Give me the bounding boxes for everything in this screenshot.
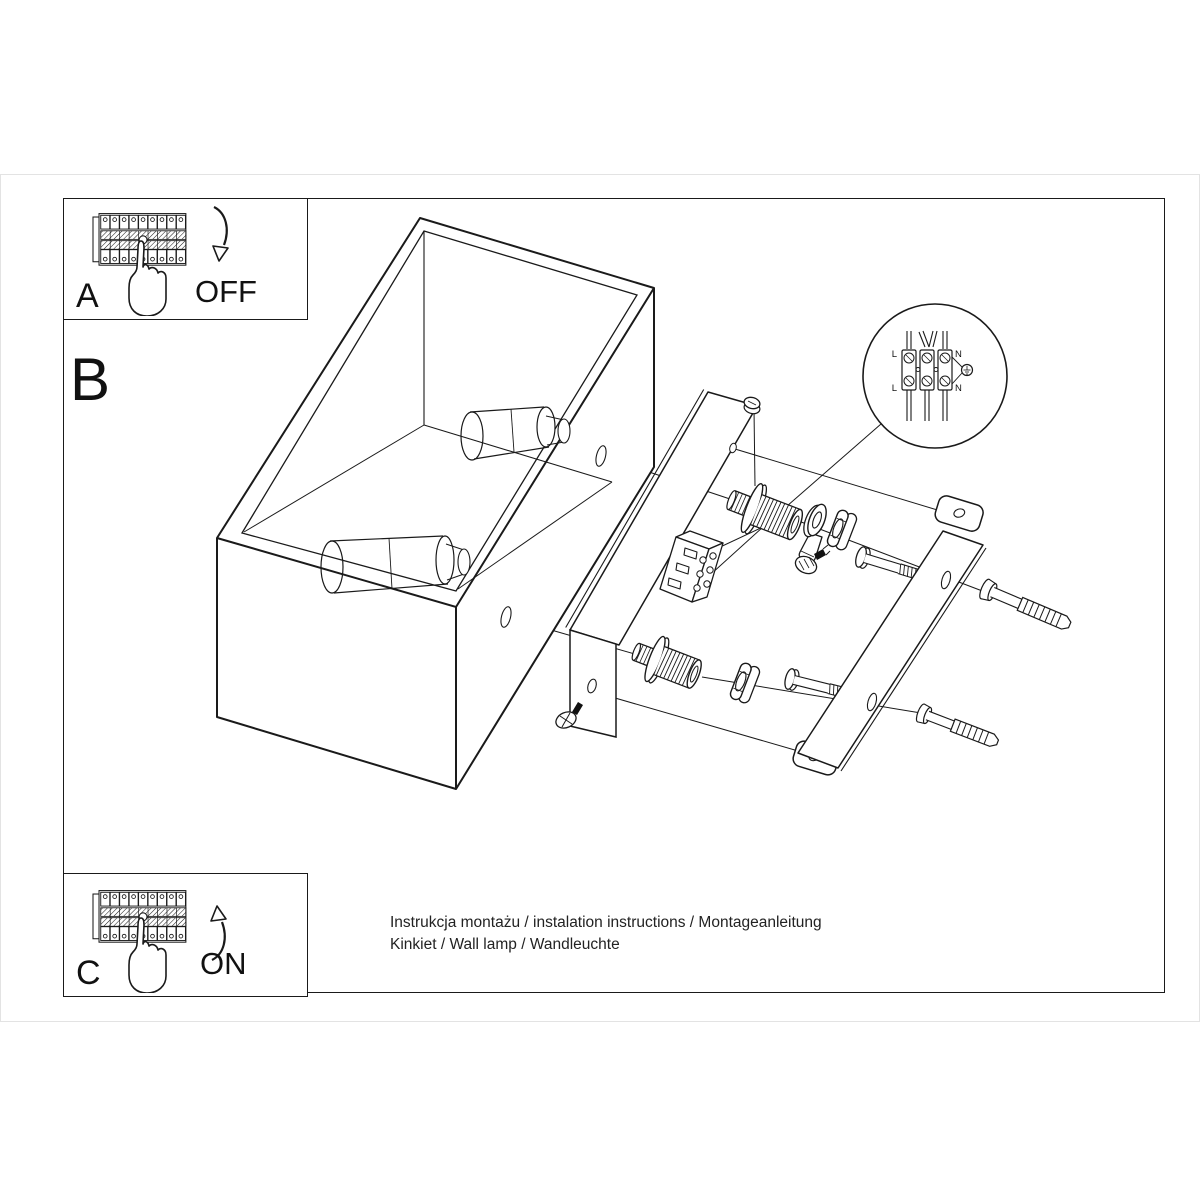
lamp-socket-upper [719,475,809,551]
wire-label-n-top: N [955,349,962,360]
hex-nut-upper [826,509,858,552]
rail-tab-top [933,494,985,533]
hex-nut-lower [729,662,761,705]
wire-label-l-top: L [892,349,897,360]
wall-plug-upper [978,578,1074,635]
wire-label-l-bottom: L [892,383,897,394]
lamp-socket-lower [625,628,707,698]
wiring-detail-circle: L N L N [863,304,1007,448]
wire-label-n-bottom: N [955,383,962,394]
wall-plug-lower [915,703,1001,751]
terminal-block-detail [902,350,952,390]
exploded-assembly-diagram: L N L N [0,0,1200,1200]
